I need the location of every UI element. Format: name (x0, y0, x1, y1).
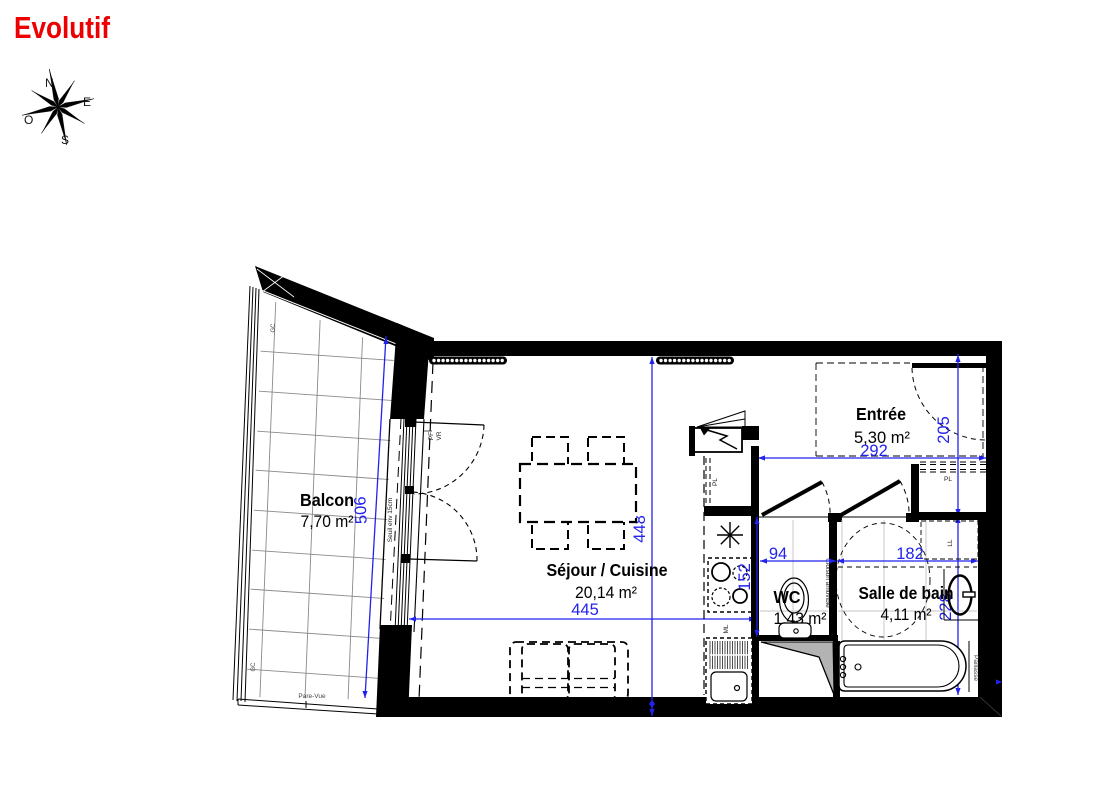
svg-text:7,70 m²: 7,70 m² (301, 513, 354, 531)
svg-text:S: S (61, 133, 69, 147)
svg-text:GC: GC (251, 662, 257, 672)
svg-text:94: 94 (769, 545, 787, 563)
svg-text:Séjour / Cuisine: Séjour / Cuisine (547, 560, 668, 580)
svg-text:4,11 m²: 4,11 m² (881, 606, 932, 624)
svg-text:N: N (45, 76, 54, 90)
svg-text:506: 506 (351, 496, 370, 524)
svg-text:Cloison amovible: Cloison amovible (824, 558, 831, 608)
svg-text:205: 205 (935, 416, 953, 444)
svg-text:445: 445 (571, 601, 599, 619)
svg-text:Salle de bain: Salle de bain (859, 583, 954, 603)
svg-text:O: O (24, 113, 33, 127)
svg-text:20,14 m²: 20,14 m² (575, 584, 637, 602)
svg-text:152: 152 (736, 563, 754, 591)
svg-text:Entrée: Entrée (856, 404, 906, 424)
svg-text:292: 292 (860, 442, 888, 460)
svg-text:182: 182 (896, 545, 924, 563)
svg-text:PL: PL (944, 476, 952, 483)
svg-text:Pare-Vue: Pare-Vue (298, 693, 326, 700)
svg-text:Evolutif: Evolutif (14, 11, 111, 45)
svg-text:PL: PL (712, 478, 719, 486)
svg-text:GC: GC (271, 323, 277, 333)
svg-text:ML: ML (723, 624, 730, 633)
svg-text:Seuil env 15cm: Seuil env 15cm (387, 498, 394, 542)
svg-text:LL: LL (947, 539, 954, 547)
svg-text:Balcon: Balcon (300, 490, 354, 510)
svg-text:E: E (83, 95, 91, 109)
svg-text:Paillasse: Paillasse (972, 655, 979, 681)
svg-text:PF: PF (428, 432, 435, 440)
svg-text:VR: VR (436, 431, 443, 440)
svg-text:WC: WC (774, 587, 801, 607)
